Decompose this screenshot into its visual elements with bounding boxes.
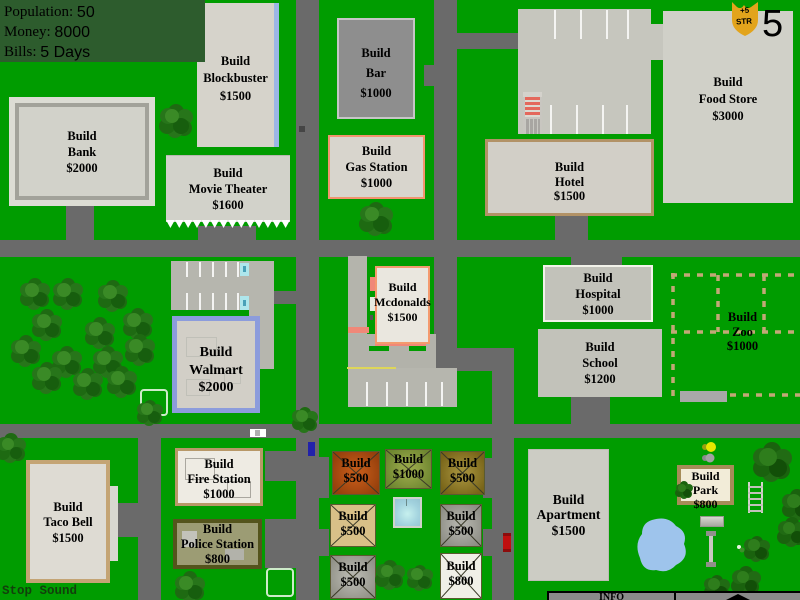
- svg-text:+5: +5: [740, 6, 750, 16]
- svg-text:STR: STR: [736, 16, 753, 26]
